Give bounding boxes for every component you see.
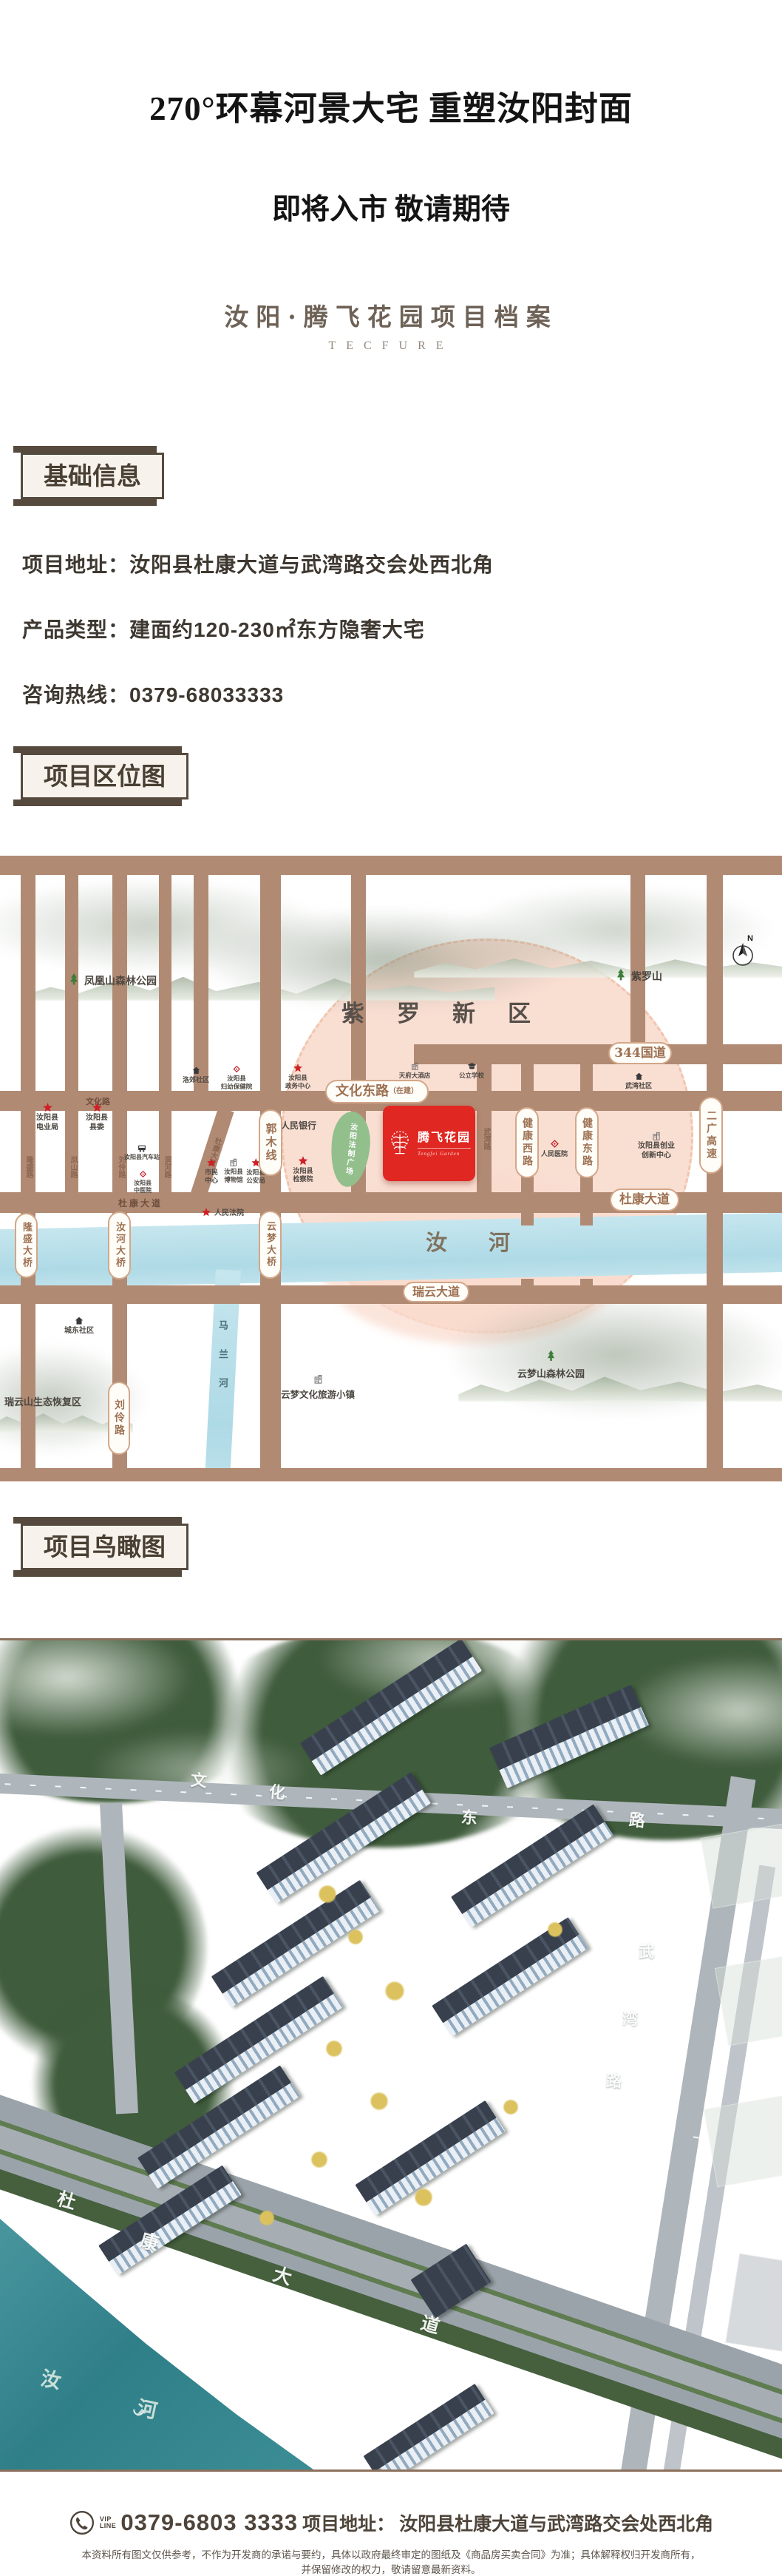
compass-north-label: N <box>747 934 753 943</box>
poi-renminyiyuan: 人民医院 <box>541 1138 568 1158</box>
project-name: 腾飞花园 <box>418 1130 471 1144</box>
poi-label: 汝阳县 博物馆 <box>224 1168 243 1183</box>
page-subtitle: 即将入市 敬请期待 <box>0 186 782 228</box>
tree-dot <box>414 2188 433 2207</box>
house-icon <box>633 1072 643 1081</box>
hospital-icon <box>548 1138 560 1149</box>
poi-xianwei: 汝阳县 县委 <box>86 1102 108 1132</box>
tree-dot <box>310 2151 328 2168</box>
info-value: 建面约120-230㎡东方隐奢大宅 <box>129 618 425 641</box>
disclaimer-line-2: 并保留修改的权力，敬请留意最新资料。 <box>0 2561 782 2576</box>
poi-fayuan: 人民法院 <box>201 1206 244 1217</box>
poi-label: 汝阳县 中医院 <box>134 1180 152 1194</box>
star-icon <box>297 1155 308 1166</box>
road-donghe <box>159 875 171 1192</box>
section-heading-aerial: 项目鸟瞰图 <box>21 1524 188 1570</box>
poi-zhongyiyuan: 汝阳县 中医院 <box>134 1169 152 1194</box>
road-label: 刘伶路 <box>114 1399 124 1437</box>
road-label: 344国道 <box>614 1047 666 1060</box>
area-shengtai: 瑞云山生态恢复区 <box>4 1394 81 1408</box>
poi-label: 汝阳县 县委 <box>86 1114 108 1132</box>
tree-dot <box>325 2040 343 2058</box>
street-fengshan: 凤山路 <box>67 1156 78 1178</box>
vip-line-label: VIP LINE <box>100 2516 117 2530</box>
tree-dot <box>370 2092 389 2111</box>
info-value: 汝阳县杜康大道与武湾路交会处西北角 <box>129 553 494 576</box>
road-char: 东 <box>460 1804 479 1829</box>
pill-ruhe-bridge: 汝河大桥 <box>108 1211 131 1279</box>
compass-icon <box>728 937 758 970</box>
location-map: 紫罗新区 汝河 马兰河 N 凤凰山森林公园 紫罗山 云梦山森林公园 瑞云山生态恢… <box>0 856 782 1481</box>
tree-dot <box>259 2210 275 2226</box>
park-label: 云梦山森林公园 <box>517 1366 585 1380</box>
page: { "header": { "title": "270°环幕河景大宅 重塑汝阳封… <box>0 0 782 2576</box>
road-fengshan <box>65 875 78 1192</box>
building-icon <box>313 1373 324 1385</box>
poi-gongli: 公立学校 <box>459 1061 484 1080</box>
info-value: 0379-68033333 <box>129 683 284 706</box>
road <box>580 1279 593 1304</box>
star-icon <box>201 1207 211 1217</box>
footer-address: 汝阳县杜康大道与武湾路交会处西北角 <box>399 2509 713 2536</box>
disclaimer-line-1: 本资料所有图文仅供参考，不作为开发商的承诺与要约，具体以政府最终审定的图纸及《商… <box>0 2546 782 2561</box>
parking-block <box>725 2254 782 2360</box>
poi-chuangye: 汝阳县创业 创新中心 <box>638 1131 675 1160</box>
archive-title: 汝阳·腾飞花园项目档案 <box>0 297 782 333</box>
house-icon <box>74 1316 84 1326</box>
area-xiaozhen: 云梦文化旅游小镇 <box>273 1373 362 1401</box>
poi-label: 市民 中心 <box>205 1169 218 1186</box>
info-row-product: 产品类型：建面约120-230㎡东方隐奢大宅 <box>22 614 425 643</box>
poi-label: 城东社区 <box>64 1327 94 1336</box>
pill-g344: 344国道 <box>608 1042 672 1064</box>
project-tree-logo-icon <box>387 1129 412 1158</box>
poi-yinhang: 人民银行 <box>281 1119 316 1132</box>
pill-ruiyun: 瑞云大道 <box>403 1282 469 1302</box>
star-icon <box>92 1102 103 1113</box>
pill-wenhuadong: 文化东路（在建） <box>325 1080 429 1103</box>
tree-dot <box>347 1929 364 1945</box>
poi-shimin: 市民 中心 <box>205 1157 218 1186</box>
bridge-label: 云梦大桥 <box>265 1221 275 1268</box>
tree-icon <box>545 1350 557 1365</box>
hospital-icon <box>138 1169 148 1179</box>
road-char: 路 <box>606 2069 622 2092</box>
project-marker: 腾飞花园 Tengfei Garden <box>383 1106 475 1181</box>
tree-dot <box>384 1981 405 2001</box>
aerial-rendering: 文 化 东 路 武 湾 路 杜 康 大 道 汝 河 <box>0 1638 782 2472</box>
street-wuwan: 武湾路 <box>480 1128 492 1150</box>
road-label-note: （在建） <box>389 1088 418 1095</box>
park-fenghuang: 凤凰山森林公园 <box>68 973 157 989</box>
road-char: 湾 <box>622 2007 638 2029</box>
bridge-label: 汝河大桥 <box>115 1222 124 1269</box>
star-icon <box>42 1102 53 1113</box>
road-label: 二广高速 <box>706 1110 716 1160</box>
field-block <box>704 2090 782 2188</box>
poi-zhengwu: 汝阳县 政务中心 <box>285 1063 310 1089</box>
seagull-icon <box>310 2424 322 2431</box>
bus-icon <box>137 1144 147 1153</box>
malan-river-label: 马兰河 <box>216 1320 230 1407</box>
pill-longsheng-bridge: 隆盛大桥 <box>15 1213 38 1278</box>
poi-bowuguan: 汝阳县 博物馆 <box>224 1157 243 1183</box>
street-dukang-left: 杜康大道 <box>118 1197 163 1209</box>
poi-qichezhan: 汝阳县汽车站 <box>124 1144 160 1161</box>
graduation-cap-icon <box>466 1061 477 1071</box>
district-label: 紫罗新区 <box>341 995 563 1028</box>
road-char: 路 <box>628 1807 647 1832</box>
phone-icon <box>69 2509 95 2536</box>
footer-contact-line: VIP LINE 0379-6803 3333 项目地址：汝阳县杜康大道与武湾路… <box>0 2509 782 2536</box>
footer: VIP LINE 0379-6803 3333 项目地址：汝阳县杜康大道与武湾路… <box>0 2474 782 2576</box>
poi-label: 汝阳县 电业局 <box>36 1114 58 1132</box>
park-ziluo: 紫罗山 <box>615 968 662 984</box>
residential-building <box>363 2384 494 2472</box>
footer-address-label: 项目地址： <box>302 2509 395 2536</box>
poi-label: 人民法院 <box>214 1206 244 1217</box>
ruhe-river-label: 汝河 <box>426 1226 551 1257</box>
plaza-label: 汝阳法制广场 <box>342 1122 358 1176</box>
info-label: 产品类型： <box>22 618 129 641</box>
footer-phone: 0379-6803 3333 <box>120 2509 298 2536</box>
building-icon <box>651 1131 662 1141</box>
star-icon <box>293 1063 303 1073</box>
poi-jianchayuan: 汝阳县 检察院 <box>293 1155 313 1184</box>
tree-icon <box>615 968 627 984</box>
park-label: 凤凰山森林公园 <box>84 973 157 988</box>
pill-dukang: 杜康大道 <box>610 1189 679 1211</box>
road-char: 化 <box>268 1779 287 1804</box>
poi-label: 武湾社区 <box>625 1082 652 1090</box>
building-icon <box>409 1061 419 1071</box>
pill-liuling: 刘伶路 <box>108 1382 130 1455</box>
seagull-icon <box>237 2387 248 2394</box>
street-donghe: 洞河路 <box>161 1156 172 1178</box>
star-icon <box>206 1157 217 1168</box>
section-heading-location-map: 项目区位图 <box>21 753 188 799</box>
road-label: 健康西路 <box>522 1118 532 1168</box>
road <box>521 1279 534 1304</box>
road-char: 武 <box>639 1940 654 1962</box>
pill-guomu: 郭木线 <box>259 1109 282 1176</box>
building-icon <box>228 1157 238 1167</box>
hospital-icon <box>231 1064 241 1074</box>
poi-tianfu: 天府大酒店 <box>399 1061 431 1080</box>
road-label: 瑞云大道 <box>412 1286 460 1298</box>
pill-jiankang-west: 健康西路 <box>515 1107 539 1178</box>
area-label: 云梦文化旅游小镇 <box>281 1387 355 1401</box>
poi-label: 公立学校 <box>459 1072 484 1080</box>
archive-title-en: TECFURE <box>0 339 782 353</box>
poi-label: 汝阳县 政务中心 <box>285 1074 310 1089</box>
road-label: 杜康大道 <box>619 1194 670 1206</box>
pill-jiankang-east: 健康东路 <box>575 1107 599 1178</box>
poi-dianyeju: 汝阳县 电业局 <box>36 1102 58 1132</box>
poi-label: 汝阳县汽车站 <box>124 1154 160 1161</box>
pill-erguang: 二广高速 <box>699 1097 723 1174</box>
poi-label: 汝阳县创业 创新中心 <box>638 1142 675 1160</box>
house-icon <box>191 1066 200 1075</box>
road-char: 文 <box>190 1767 208 1792</box>
heading-text: 项目鸟瞰图 <box>44 1532 166 1561</box>
poi-wuwan-shequ: 武湾社区 <box>625 1072 652 1090</box>
street-longsheng: 隆盛路 <box>23 1156 34 1178</box>
road-label: 文化东路 <box>336 1085 389 1098</box>
park-yunmengshan: 云梦山森林公园 <box>517 1350 585 1380</box>
poi-fuyou: 汝阳县 妇幼保健院 <box>221 1064 253 1090</box>
heading-text: 基础信息 <box>44 462 141 490</box>
heading-text: 项目区位图 <box>44 762 166 791</box>
poi-label: 汝阳县 妇幼保健院 <box>221 1075 253 1090</box>
section-heading-basic-info: 基础信息 <box>21 453 164 499</box>
tree-icon <box>68 973 80 989</box>
info-label: 咨询热线： <box>22 683 129 706</box>
poi-luojiao: 洛郊社区 <box>183 1066 209 1084</box>
page-title: 270°环幕河景大宅 重塑汝阳封面 <box>0 81 782 129</box>
pill-yunmeng-bridge: 云梦大桥 <box>259 1211 282 1279</box>
bridge-label: 隆盛大桥 <box>21 1222 31 1269</box>
poi-label: 人民医院 <box>541 1150 568 1158</box>
road-label: 健康东路 <box>582 1118 592 1168</box>
road-label: 郭木线 <box>265 1123 276 1163</box>
poi-label: 汝阳县 检察院 <box>293 1167 313 1184</box>
seagull-icon <box>184 2346 196 2353</box>
tree-dot <box>547 1921 563 1938</box>
park-label: 紫罗山 <box>631 969 662 984</box>
tree-dot <box>503 2099 519 2115</box>
compass: N <box>728 937 758 970</box>
poi-label: 洛郊社区 <box>183 1076 209 1084</box>
info-label: 项目地址： <box>22 553 129 576</box>
residential-building <box>432 1917 588 2037</box>
info-row-hotline: 咨询热线：0379-68033333 <box>22 679 284 709</box>
poi-label: 天府大酒店 <box>399 1072 431 1080</box>
info-row-address: 项目地址：汝阳县杜康大道与武湾路交会处西北角 <box>22 549 494 578</box>
project-name-en: Tengfei Garden <box>418 1148 471 1157</box>
poi-chengdong: 城东社区 <box>64 1316 94 1336</box>
tree-dot <box>318 1884 337 1904</box>
